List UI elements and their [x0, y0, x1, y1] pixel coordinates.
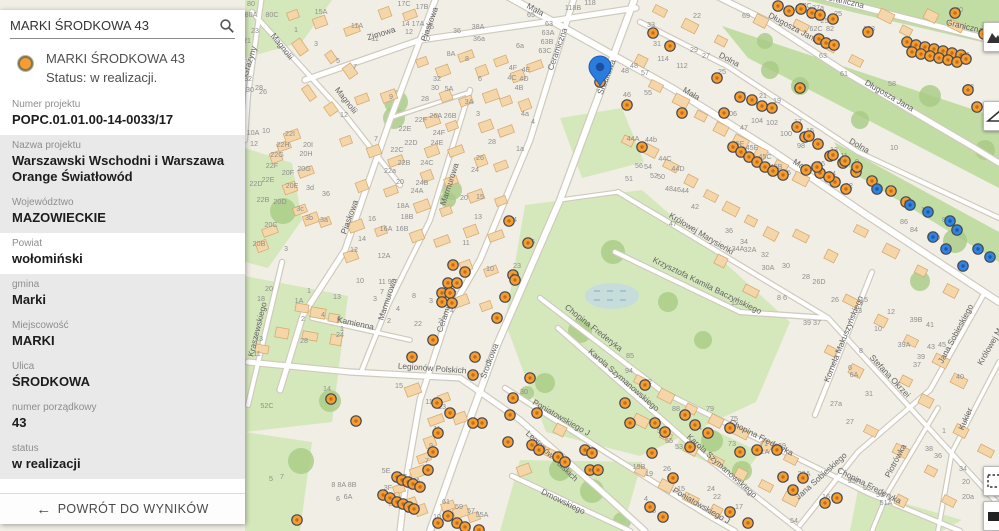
- project-point-marker[interactable]: [593, 465, 603, 475]
- house-number-label: 10: [262, 126, 270, 135]
- house-number-label: 44D: [671, 164, 684, 173]
- house-number-label: 5E: [382, 466, 391, 475]
- house-number-label: 58: [888, 79, 896, 88]
- project-point-marker[interactable]: [650, 418, 660, 428]
- house-number-label: 23: [513, 261, 521, 270]
- house-number-label: 27: [846, 417, 854, 426]
- project-point-marker[interactable]: [829, 40, 839, 50]
- house-number-label: 15: [426, 22, 434, 31]
- project-point-marker[interactable]: [415, 482, 425, 492]
- project-point-marker-blue[interactable]: [985, 252, 995, 262]
- house-number-label: 6A: [850, 370, 859, 379]
- house-number-label: 44A: [627, 134, 640, 143]
- house-number-label: 20D: [273, 197, 286, 206]
- attribute-label: Miejscowość: [12, 320, 233, 331]
- house-number-label: 85: [626, 351, 634, 360]
- house-number-label: 16A: [380, 224, 393, 233]
- attribute-value: Marki: [12, 292, 233, 309]
- result-status: Status: w realizacji.: [46, 69, 185, 88]
- project-point-marker[interactable]: [409, 504, 419, 514]
- attribute-row-1: Nazwa projektuWarszawski Wschodni i Wars…: [0, 135, 245, 193]
- project-point-marker[interactable]: [503, 437, 513, 447]
- search-icon[interactable]: [219, 18, 235, 34]
- house-number-label: 10: [422, 34, 430, 43]
- project-point-marker-blue[interactable]: [928, 232, 938, 242]
- house-number-label: 62C: [809, 24, 822, 33]
- house-number-label: 28: [421, 94, 429, 103]
- house-number-label: 38: [925, 444, 933, 453]
- house-number-label: 13: [255, 334, 263, 343]
- attribute-value: ŚRODKOWA: [12, 374, 233, 391]
- project-point-marker-blue[interactable]: [872, 184, 882, 194]
- project-point-marker[interactable]: [508, 393, 518, 403]
- house-number-label: 1a: [516, 144, 524, 153]
- house-number-label: 47: [740, 123, 748, 132]
- project-point-marker[interactable]: [660, 427, 670, 437]
- house-number-label: 11: [462, 238, 469, 247]
- project-point-marker[interactable]: [685, 442, 695, 452]
- project-point-marker-blue[interactable]: [958, 261, 968, 271]
- house-number-label: 3: [284, 244, 288, 253]
- project-point-marker[interactable]: [752, 445, 762, 455]
- house-number-label: 8 8A 8B: [331, 480, 356, 489]
- attribute-row-7: numer porządkowy43: [0, 397, 245, 438]
- house-number-label: 51A: [880, 498, 893, 507]
- house-number-label: 20: [265, 284, 273, 293]
- project-point-marker[interactable]: [788, 485, 798, 495]
- green-area: [245, 432, 312, 531]
- house-number-label: 15A: [315, 7, 328, 16]
- project-point-marker[interactable]: [525, 373, 535, 383]
- house-number-label: 7: [380, 287, 384, 296]
- project-point-marker[interactable]: [804, 131, 814, 141]
- project-point-marker[interactable]: [813, 139, 823, 149]
- search-input[interactable]: [10, 15, 235, 39]
- project-point-marker[interactable]: [772, 445, 782, 455]
- project-point-marker[interactable]: [640, 380, 650, 390]
- result-header[interactable]: MARKI ŚRODKOWA 43 Status: w realizacji.: [0, 39, 245, 94]
- house-number-label: 69: [742, 11, 750, 20]
- house-number-label: 8: [412, 291, 416, 300]
- project-point-marker[interactable]: [832, 493, 842, 503]
- house-number-label: 53A: [848, 476, 861, 485]
- house-number-label: 61: [840, 69, 848, 78]
- house-number-label: 34: [959, 464, 967, 473]
- tree-icon: [919, 85, 941, 107]
- project-point-marker[interactable]: [500, 292, 510, 302]
- project-point-marker[interactable]: [637, 142, 647, 152]
- house-number-label: 22: [693, 11, 701, 20]
- house-number-label: 48: [621, 66, 629, 75]
- house-number-label: 3A: [465, 97, 474, 106]
- map-control-button[interactable]: [983, 466, 999, 496]
- house-number-label: 20I: [303, 140, 313, 149]
- project-point-marker[interactable]: [433, 428, 443, 438]
- project-point-marker[interactable]: [658, 512, 668, 522]
- project-point-marker[interactable]: [840, 156, 850, 166]
- house-number-label: 63B: [541, 37, 554, 46]
- tree-icon: [851, 111, 869, 129]
- house-number-label: 32A: [744, 245, 757, 254]
- house-number-label: 1A: [295, 296, 304, 305]
- project-point-marker[interactable]: [474, 525, 484, 531]
- house-number-label: 22F: [266, 161, 279, 170]
- house-number-label: 2: [301, 314, 305, 323]
- house-number-label: 32: [433, 74, 441, 83]
- house-number-label: 22D: [404, 138, 417, 147]
- project-point-marker[interactable]: [886, 186, 896, 196]
- project-point-marker[interactable]: [445, 408, 455, 418]
- attribute-label: Numer projektu: [12, 99, 233, 110]
- house-number-label: 4E: [522, 65, 531, 74]
- house-number-label: 2: [387, 316, 391, 325]
- back-arrow-icon: ←: [36, 502, 51, 517]
- house-number-label: 13: [854, 306, 862, 315]
- house-number-label: 12A: [378, 251, 391, 260]
- house-number-label: 57: [641, 68, 649, 77]
- project-point-marker[interactable]: [468, 418, 478, 428]
- house-number-label: 24F: [433, 128, 446, 137]
- attribute-row-4: gminaMarki: [0, 274, 245, 315]
- house-number-label: 8A: [447, 49, 456, 58]
- project-point-marker[interactable]: [534, 445, 544, 455]
- tree-icon: [288, 448, 314, 474]
- project-point-marker[interactable]: [796, 4, 806, 14]
- house-number-label: 3: [373, 294, 377, 303]
- tree-icon: [658, 292, 678, 312]
- map-control-button[interactable]: [983, 501, 999, 531]
- building: [275, 327, 290, 339]
- house-number-label: 20a: [962, 492, 974, 501]
- house-number-label: 118: [584, 0, 595, 7]
- house-number-label: 30A: [762, 263, 775, 272]
- house-number-label: 15: [476, 192, 484, 201]
- house-number-label: 100: [780, 129, 792, 138]
- project-point-marker[interactable]: [625, 418, 635, 428]
- house-number-label: 118B: [565, 3, 581, 12]
- details-panel: MARKI ŚRODKOWA 43 Status: w realizacji. …: [0, 10, 245, 524]
- house-number-label: 26: [259, 87, 267, 96]
- house-number-label: 30: [782, 261, 790, 270]
- house-number-label: 11 9: [378, 277, 391, 286]
- project-point-marker[interactable]: [532, 408, 542, 418]
- attribute-value: MARKI: [12, 333, 233, 350]
- house-number-label: 17B: [416, 2, 429, 11]
- project-point-marker[interactable]: [712, 73, 722, 83]
- project-point-marker[interactable]: [680, 410, 690, 420]
- house-number-label: 52C: [260, 401, 273, 410]
- house-number-label: 53: [675, 442, 683, 451]
- house-number-label: 28: [802, 272, 810, 281]
- house-number-label: 59: [455, 502, 463, 511]
- house-number-label: 46: [673, 185, 681, 194]
- project-point-marker-blue[interactable]: [923, 207, 933, 217]
- project-point-marker[interactable]: [492, 313, 502, 323]
- house-number-label: 11A: [351, 21, 363, 30]
- attribute-label: gmina: [12, 279, 233, 290]
- house-number-label: 37: [913, 360, 921, 369]
- project-point-marker-blue[interactable]: [945, 216, 955, 226]
- project-point-marker[interactable]: [863, 27, 873, 37]
- project-point-marker[interactable]: [820, 498, 830, 508]
- project-point-marker[interactable]: [792, 122, 802, 132]
- house-number-label: 26D: [812, 277, 825, 286]
- attribute-row-5: MiejscowośćMARKI: [0, 315, 245, 356]
- project-point-marker[interactable]: [725, 507, 735, 517]
- project-point-marker-blue[interactable]: [905, 200, 915, 210]
- house-number-label: 112: [676, 61, 687, 70]
- house-number-label: 31: [653, 39, 661, 48]
- house-number-label: 55: [644, 88, 652, 97]
- house-number-label: 94: [625, 366, 633, 375]
- house-number-label: 22a: [384, 166, 396, 175]
- project-point-marker-blue[interactable]: [941, 244, 951, 254]
- house-number-label: 10: [486, 264, 494, 273]
- house-number-label: 1: [294, 25, 298, 34]
- project-point-marker[interactable]: [841, 184, 851, 194]
- project-point-marker[interactable]: [460, 267, 470, 277]
- project-point-marker[interactable]: [460, 522, 470, 531]
- house-number-label: 16B: [396, 224, 409, 233]
- map-control-button[interactable]: [983, 22, 999, 52]
- house-number-label: 61: [442, 497, 450, 506]
- house-number-label: 10: [890, 143, 898, 152]
- project-point-marker[interactable]: [743, 518, 753, 528]
- project-point-marker[interactable]: [443, 511, 453, 521]
- project-point-marker[interactable]: [647, 448, 657, 458]
- house-number-label: 65: [527, 10, 535, 19]
- house-number-label: 30: [431, 83, 439, 92]
- house-number-label: 18B: [401, 212, 414, 221]
- house-number-label: 15: [677, 484, 685, 493]
- house-number-label: 22E: [262, 175, 275, 184]
- project-point-marker[interactable]: [690, 420, 700, 430]
- attribute-value: wołomiński: [12, 251, 233, 268]
- house-number-label: 22: [713, 492, 721, 501]
- project-point-marker-blue[interactable]: [973, 244, 983, 254]
- project-point-marker[interactable]: [795, 83, 805, 93]
- project-point-marker[interactable]: [447, 298, 457, 308]
- house-number-label: 4D: [519, 74, 528, 83]
- house-number-label: 63: [545, 19, 553, 28]
- house-number-label: 39B: [910, 315, 923, 324]
- house-number-label: 102: [766, 118, 778, 127]
- dashed-rect-icon: [984, 471, 999, 491]
- project-point-marker[interactable]: [950, 8, 960, 18]
- project-point-marker[interactable]: [470, 352, 480, 362]
- house-number-label: 3b: [305, 213, 313, 222]
- house-number-label: 12: [405, 27, 413, 36]
- project-point-marker[interactable]: [824, 172, 834, 182]
- house-number-label: 4: [531, 117, 535, 126]
- house-number-label: 16: [368, 214, 376, 223]
- house-number-label: 20B: [253, 239, 266, 248]
- house-number-label: 44: [681, 186, 689, 195]
- house-number-label: 20H: [299, 149, 312, 158]
- project-point-marker[interactable]: [448, 260, 458, 270]
- project-point-marker[interactable]: [801, 165, 811, 175]
- house-number-label: 86: [900, 217, 908, 226]
- project-point-marker[interactable]: [725, 423, 735, 433]
- project-point-marker[interactable]: [735, 92, 745, 102]
- house-number-label: 12: [350, 245, 358, 254]
- project-point-marker[interactable]: [468, 370, 478, 380]
- project-point-marker[interactable]: [778, 170, 788, 180]
- house-number-label: 45: [938, 340, 946, 349]
- house-number-label: 24: [471, 165, 479, 174]
- house-number-label: 54: [644, 162, 652, 171]
- search-row: [0, 10, 245, 39]
- house-number-label: 27a: [830, 399, 842, 408]
- project-point-marker[interactable]: [510, 275, 520, 285]
- house-number-label: 19: [645, 469, 653, 478]
- attribute-label: numer porządkowy: [12, 402, 233, 413]
- house-number-label: 63: [819, 51, 827, 60]
- project-point-marker[interactable]: [560, 457, 570, 467]
- project-point-marker[interactable]: [798, 473, 808, 483]
- project-point-marker[interactable]: [778, 472, 788, 482]
- project-point-marker[interactable]: [452, 278, 462, 288]
- project-point-marker[interactable]: [812, 162, 822, 172]
- attribute-row-6: UlicaŚRODKOWA: [0, 356, 245, 397]
- project-point-marker[interactable]: [505, 410, 515, 420]
- map-control-button[interactable]: [983, 101, 999, 131]
- project-point-marker[interactable]: [828, 14, 838, 24]
- project-point-marker[interactable]: [292, 515, 302, 525]
- house-number-label: 7: [374, 134, 378, 143]
- house-number-label: 13: [333, 292, 341, 301]
- house-number-label: 10A: [247, 128, 260, 137]
- project-point-marker[interactable]: [587, 448, 597, 458]
- project-point-marker[interactable]: [735, 447, 745, 457]
- attribute-value: w realizacji: [12, 456, 233, 473]
- back-button-label: POWRÓT DO WYNIKÓW: [58, 502, 209, 516]
- house-number-label: 10: [874, 324, 882, 333]
- house-number-label: 15: [395, 381, 403, 390]
- house-number-label: 53: [863, 483, 871, 492]
- project-point-marker[interactable]: [773, 1, 783, 11]
- project-point-marker[interactable]: [504, 216, 514, 226]
- house-number-label: 3: [314, 39, 318, 48]
- project-point-marker[interactable]: [815, 10, 825, 20]
- house-number-label: 20: [460, 193, 468, 202]
- house-number-label: 19B: [633, 462, 646, 471]
- house-number-label: 12: [887, 307, 895, 316]
- house-number-label: 44C: [658, 154, 671, 163]
- house-number-label: 6A: [344, 492, 353, 501]
- house-number-label: 22E: [399, 124, 412, 133]
- project-point-marker[interactable]: [428, 335, 438, 345]
- project-point-marker[interactable]: [620, 398, 630, 408]
- project-point-marker[interactable]: [963, 85, 973, 95]
- house-number-label: 20: [962, 477, 970, 486]
- house-number-label: 5: [269, 474, 273, 483]
- project-point-marker[interactable]: [767, 103, 777, 113]
- house-number-label: 4B: [515, 83, 524, 92]
- project-point-marker[interactable]: [784, 6, 794, 16]
- house-number-label: 39 37: [803, 318, 821, 327]
- house-number-label: 88: [672, 404, 680, 413]
- project-point-marker[interactable]: [433, 518, 443, 528]
- project-point-marker[interactable]: [677, 108, 687, 118]
- house-number-label: 39A: [898, 340, 911, 349]
- house-number-label: 50: [657, 172, 665, 181]
- house-number-label: 114: [657, 54, 668, 63]
- project-point-marker[interactable]: [437, 297, 447, 307]
- project-point-marker[interactable]: [445, 288, 455, 298]
- project-point-marker[interactable]: [972, 102, 982, 112]
- house-number-label: 4a: [521, 109, 529, 118]
- house-number-label: 7: [425, 456, 429, 465]
- project-point-marker[interactable]: [645, 502, 655, 512]
- house-number-label: 43: [927, 342, 935, 351]
- house-number-label: 12: [731, 298, 739, 307]
- attribute-value: 43: [12, 415, 233, 432]
- house-number-label: 22I: [285, 129, 295, 138]
- house-number-label: 14: [358, 234, 366, 243]
- project-point-marker[interactable]: [523, 238, 533, 248]
- house-number-label: 6a: [516, 41, 524, 50]
- project-point-marker[interactable]: [961, 54, 971, 64]
- house-number-label: 26A 26B: [429, 111, 456, 120]
- project-point-marker[interactable]: [622, 100, 632, 110]
- project-point-marker[interactable]: [719, 108, 729, 118]
- house-number-label: 20E: [286, 181, 299, 190]
- attribute-value: POPC.01.01.00-14-0033/17: [12, 112, 233, 129]
- project-point-marker[interactable]: [665, 41, 675, 51]
- project-point-marker[interactable]: [423, 465, 433, 475]
- house-number-label: 4: [396, 304, 400, 313]
- house-number-label: 30: [246, 85, 254, 94]
- house-number-label: 20C: [264, 220, 277, 229]
- attribute-row-3: Powiatwołomiński: [0, 233, 245, 274]
- project-point-marker[interactable]: [407, 352, 417, 362]
- house-number-label: 51: [625, 174, 633, 183]
- project-point-marker[interactable]: [351, 416, 361, 426]
- house-number-label: 38A: [472, 22, 485, 31]
- attribute-value: MAZOWIECKIE: [12, 210, 233, 227]
- attribute-label: Województwo: [12, 197, 233, 208]
- project-point-marker-blue[interactable]: [952, 225, 962, 235]
- project-point-marker[interactable]: [432, 398, 442, 408]
- back-to-results-button[interactable]: ← POWRÓT DO WYNIKÓW: [0, 493, 245, 524]
- house-number-label: 26: [663, 464, 671, 473]
- project-point-marker[interactable]: [852, 162, 862, 172]
- project-point-marker[interactable]: [668, 473, 678, 483]
- filled-rect-icon: [984, 506, 999, 526]
- project-point-marker[interactable]: [703, 428, 713, 438]
- project-point-marker[interactable]: [828, 150, 838, 160]
- project-point-marker[interactable]: [747, 95, 757, 105]
- house-number-label: 3d: [306, 183, 314, 192]
- house-number-label: 47: [669, 219, 677, 228]
- project-point-marker[interactable]: [428, 447, 438, 457]
- house-number-label: 46: [623, 90, 631, 99]
- house-number-label: 14: [323, 384, 331, 393]
- project-point-marker[interactable]: [326, 394, 336, 404]
- house-number-label: 24E: [431, 138, 444, 147]
- attribute-row-8: statusw realizacji: [0, 438, 245, 479]
- project-marker-icon: [18, 56, 33, 71]
- house-number-label: 80: [247, 0, 255, 8]
- project-point-marker[interactable]: [757, 101, 767, 111]
- house-number-label: 48: [665, 184, 673, 193]
- project-point-marker[interactable]: [648, 28, 658, 38]
- house-number-label: 21: [759, 91, 767, 100]
- house-number-label: 12: [250, 139, 258, 148]
- house-number-label: 42: [691, 202, 699, 211]
- project-point-marker[interactable]: [768, 166, 778, 176]
